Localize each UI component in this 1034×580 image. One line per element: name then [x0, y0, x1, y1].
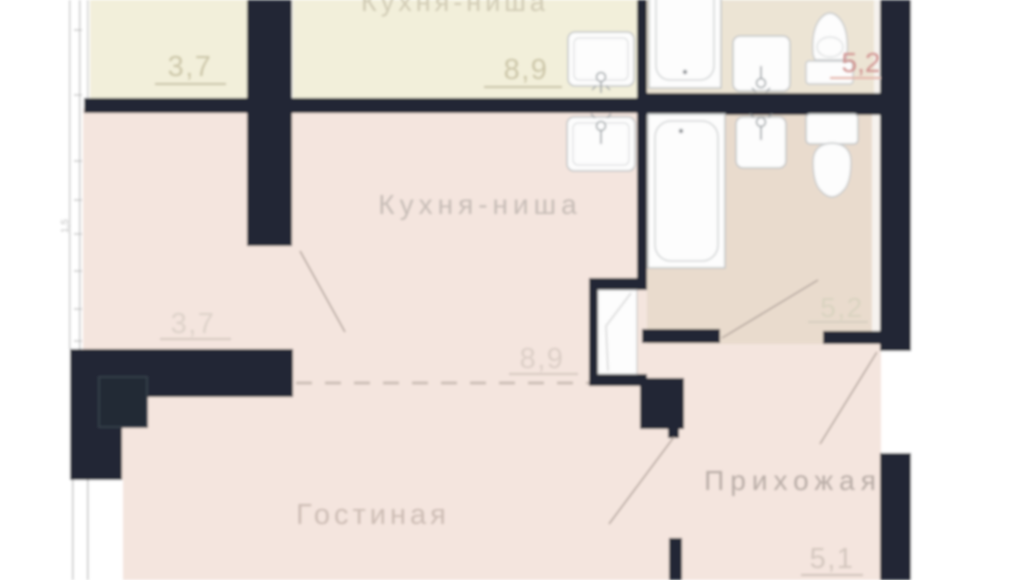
svg-text:5,2: 5,2 [820, 292, 863, 323]
svg-text:8,9: 8,9 [520, 343, 565, 375]
svg-text:3,7: 3,7 [168, 51, 213, 83]
svg-text:Гостиная: Гостиная [296, 499, 450, 531]
svg-text:5,1: 5,1 [810, 543, 855, 575]
svg-text:8,9: 8,9 [504, 54, 549, 86]
svg-text:Кухня-ниша: Кухня-ниша [378, 189, 581, 220]
svg-text:3,7: 3,7 [171, 308, 216, 340]
svg-text:Кухня-ниша: Кухня-ниша [361, 0, 549, 17]
svg-text:5,2: 5,2 [842, 47, 881, 78]
svg-text:1,5: 1,5 [60, 219, 71, 233]
svg-text:Прихожая: Прихожая [704, 465, 882, 496]
